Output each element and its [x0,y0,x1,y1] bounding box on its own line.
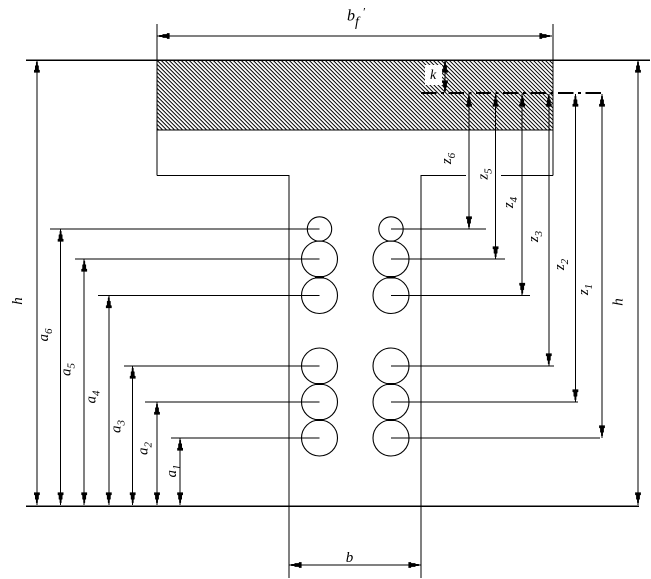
svg-text:h: h [611,298,627,306]
svg-text:b: b [346,550,354,566]
svg-text:h: h [10,297,26,305]
svg-text:k: k [430,68,437,83]
